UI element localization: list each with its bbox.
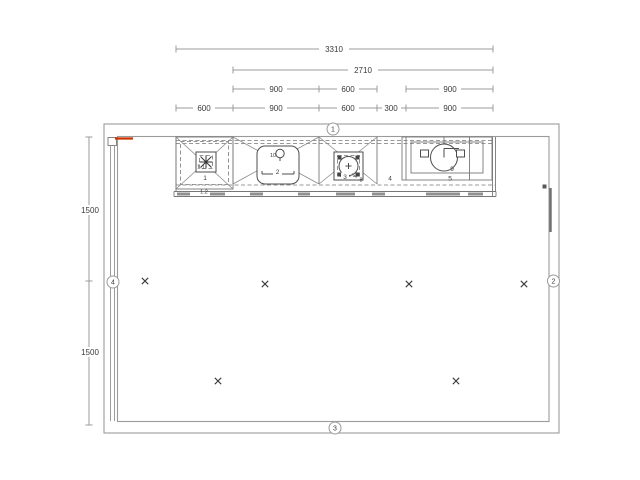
svg-text:3: 3 [333, 426, 337, 433]
wall-marker-right[interactable]: 2 [548, 275, 560, 287]
light-marker[interactable] [215, 378, 221, 384]
hood-unit-sub2-label: 1.2 [200, 190, 208, 196]
dim-label-upper-1: 600 [341, 85, 355, 94]
light-marker[interactable] [453, 378, 459, 384]
faucet-icon [276, 149, 284, 157]
dim-label-left-1: 1500 [81, 348, 99, 357]
filler-label: 4 [388, 176, 392, 183]
appliance-label: 9 [450, 166, 454, 173]
dim-label-upper-0: 900 [269, 85, 283, 94]
dimension-row-mid: 2710 [233, 65, 493, 75]
light-marker[interactable] [142, 278, 148, 284]
dim-label-lower-2: 600 [341, 104, 355, 113]
dimension-row-upper: 900 600 900 [233, 85, 493, 95]
dim-label-upper-2: 900 [443, 85, 457, 94]
right-unit-label: 5 [448, 176, 452, 183]
sink-unit-label: 2 [276, 169, 280, 176]
faucet-label: 10 [270, 153, 276, 159]
hob-accessory-label: 8 [359, 178, 362, 184]
dim-label-lower-0: 600 [197, 104, 211, 113]
dim-label-total: 3310 [325, 45, 343, 54]
light-marker[interactable] [521, 281, 527, 287]
wall-inner-line [118, 137, 550, 422]
hob-unit-label: 3 [343, 174, 347, 181]
dimension-column-left: 1500 1500 [78, 137, 102, 425]
dim-label-lower-3: 300 [384, 104, 398, 113]
svg-text:4: 4 [111, 280, 115, 287]
svg-text:1: 1 [331, 127, 335, 134]
dim-label-left-0: 1500 [81, 206, 99, 215]
floor-plan-canvas: 3310 2710 900 600 900 600 900 6 [0, 0, 640, 480]
hood-unit[interactable]: 1.1 1 1.2 [176, 137, 233, 196]
floor-plan-drawing: 3310 2710 900 600 900 600 900 6 [0, 0, 640, 480]
svg-text:2: 2 [552, 279, 556, 286]
right-wall-segment[interactable] [543, 185, 551, 233]
wall-marker-top[interactable]: 1 [327, 123, 339, 135]
dim-label-lower-4: 900 [443, 104, 457, 113]
hood-unit-sub-label: 1.1 [197, 165, 205, 171]
sink-unit[interactable]: 10 2 [233, 137, 319, 184]
wall-marker-left[interactable]: 4 [107, 276, 119, 288]
dimension-row-total: 3310 [176, 44, 493, 54]
door-handles [177, 193, 483, 196]
light-marker[interactable] [262, 281, 268, 287]
dim-label-mid: 2710 [354, 66, 372, 75]
dim-label-lower-1: 900 [269, 104, 283, 113]
hob-unit[interactable]: 3 8 [319, 137, 377, 184]
room-outline [104, 124, 559, 433]
light-marker[interactable] [406, 281, 412, 287]
dimension-row-lower: 600 900 600 300 900 [176, 104, 493, 114]
wall-outer-line [104, 124, 559, 433]
filler-piece[interactable]: 4 [388, 176, 392, 183]
hood-unit-label: 1 [203, 175, 207, 182]
wall-marker-bottom[interactable]: 3 [329, 422, 341, 434]
ceiling-light-markers [142, 278, 527, 384]
